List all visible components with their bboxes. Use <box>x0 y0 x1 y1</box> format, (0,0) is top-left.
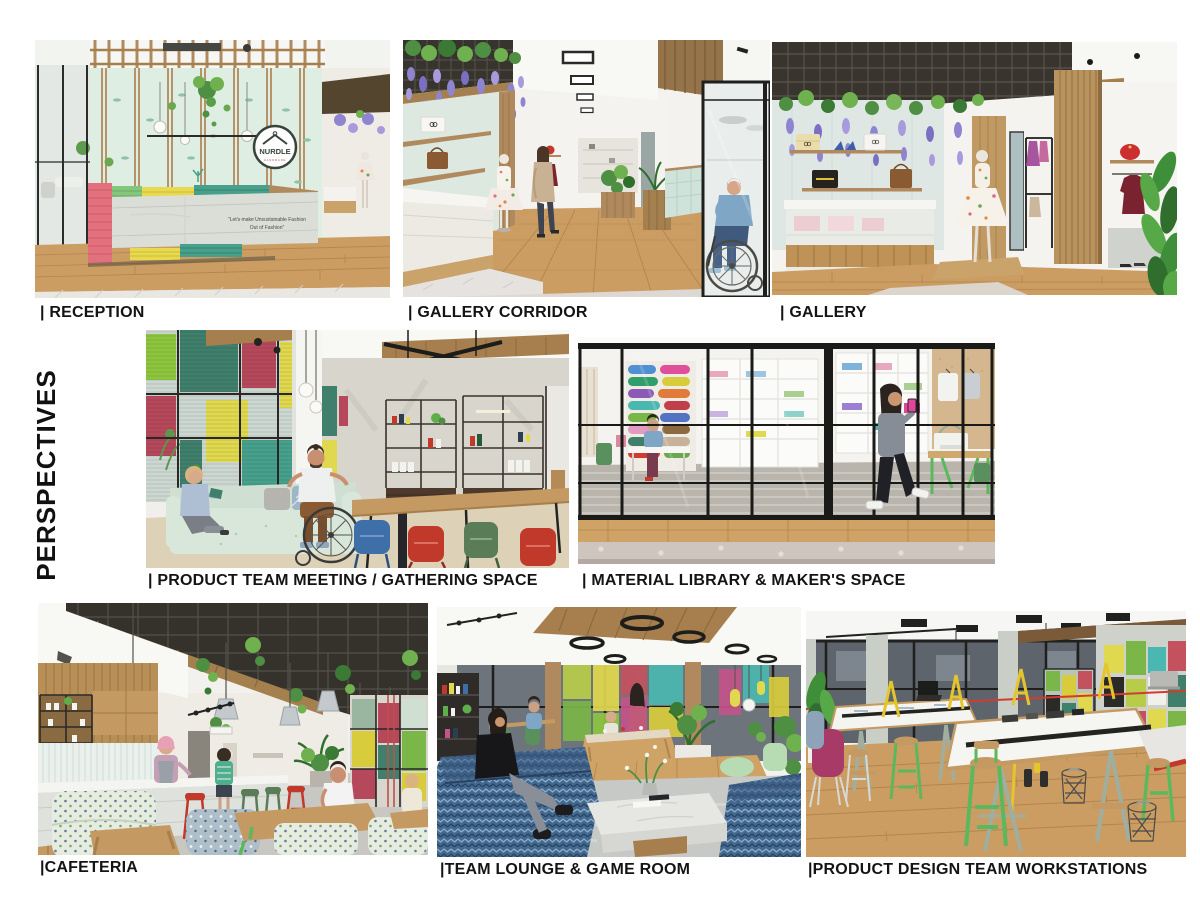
label-team-lounge: |TEAM LOUNGE & GAME ROOM <box>440 861 690 879</box>
logo-text: NURDLE <box>259 147 290 156</box>
display-counter <box>784 200 936 272</box>
interior-behind-glass <box>578 347 995 517</box>
logo-subtext: HANDMADE <box>264 158 286 162</box>
desk-quote-line1: "Let's make Unsustainable Fashion <box>228 217 306 223</box>
wood-slat-wall <box>38 663 158 783</box>
glass-door <box>1010 132 1024 250</box>
desk-quote-line2: Out of Fashion" <box>250 225 285 231</box>
nurdle-logo: NURDLE HANDMADE <box>254 126 296 168</box>
ceiling <box>437 607 801 665</box>
render-cafeteria <box>38 603 428 855</box>
meeting-space-illustration <box>146 330 569 568</box>
doorway <box>546 386 569 500</box>
presentation-board: PERSPECTIVES <box>0 0 1200 900</box>
render-product-team-meeting <box>146 330 569 568</box>
gallery-corridor-illustration <box>403 40 770 297</box>
label-product-team-meeting: | PRODUCT TEAM MEETING / GATHERING SPACE <box>148 572 538 590</box>
label-gallery: | GALLERY <box>780 304 867 322</box>
label-cafeteria: |CAFETERIA <box>40 859 138 877</box>
concrete-wall <box>322 358 569 500</box>
label-gallery-corridor: | GALLERY CORRIDOR <box>408 304 588 322</box>
colorful-panel-wall <box>146 330 292 502</box>
white-fabric-cabinet <box>702 359 818 467</box>
render-reception: NURDLE HANDMADE <box>35 40 390 298</box>
cafeteria-illustration <box>38 603 428 855</box>
patterned-rug <box>578 542 995 564</box>
floral-armchair <box>274 823 358 855</box>
render-gallery-corridor <box>403 40 770 297</box>
glass-meeting-room <box>35 65 90 245</box>
material-library-illustration <box>578 337 995 564</box>
wood-floor <box>578 520 995 542</box>
label-workstations: |PRODUCT DESIGN TEAM WORKSTATIONS <box>808 861 1147 879</box>
render-team-lounge <box>437 607 801 857</box>
fabric-roll-shelf <box>626 361 696 471</box>
page-title: PERSPECTIVES <box>27 369 65 581</box>
clothing-rack <box>1024 100 1052 260</box>
workstations-illustration <box>806 611 1186 857</box>
render-workstations <box>806 611 1186 857</box>
label-material-library: | MATERIAL LIBRARY & MAKER'S SPACE <box>582 572 906 590</box>
gallery-glimpse <box>322 68 390 260</box>
gallery-illustration <box>772 42 1177 295</box>
blue-sofa-right <box>719 773 801 857</box>
label-reception: | RECEPTION <box>40 304 144 322</box>
render-material-library <box>578 337 995 564</box>
open-shelf-cups <box>40 695 92 743</box>
glass-wall-wheelchair-man <box>703 82 770 297</box>
team-lounge-illustration <box>437 607 801 857</box>
bookshelf-left <box>437 673 479 761</box>
render-gallery <box>772 42 1177 295</box>
wood-pillar <box>1054 70 1102 264</box>
reception-illustration: NURDLE HANDMADE <box>35 40 390 298</box>
blue-sofa-left <box>437 747 599 857</box>
